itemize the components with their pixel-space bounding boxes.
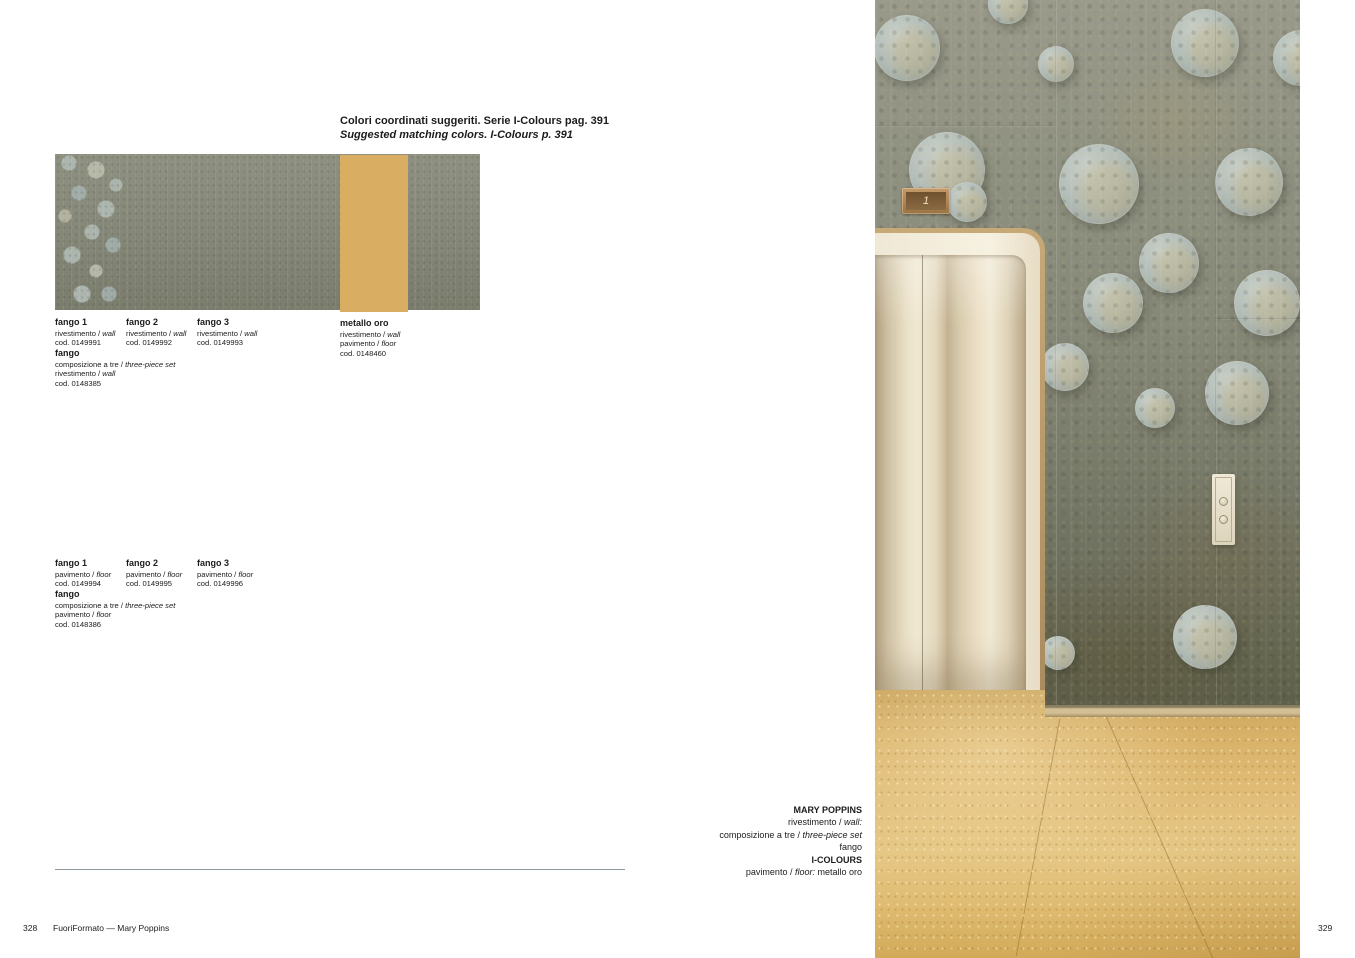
elevator [875, 228, 1045, 690]
label-metallo-oro: metallo oro rivestimento / wall paviment… [340, 319, 430, 358]
wall-circle [1139, 233, 1199, 293]
elevator-floor-display: 1 [902, 188, 950, 214]
project-wall-product: fango [562, 841, 862, 853]
product-name: fango 3 [197, 318, 267, 328]
product-name: fango [55, 349, 275, 359]
project-title: MARY POPPINS [562, 804, 862, 816]
heading-english: Suggested matching colors. I-Colours p. … [340, 129, 609, 143]
product-code: cod. 0148386 [55, 620, 275, 630]
wall-tile-joint [1215, 0, 1217, 717]
photo-gold-floor [875, 690, 1300, 958]
elevator-doors [875, 255, 1026, 690]
page-number-left: 328 [23, 923, 37, 933]
wall-circle [1215, 148, 1283, 216]
call-button-up [1219, 497, 1228, 506]
wall-circle [947, 182, 987, 222]
product-name: fango 3 [197, 559, 267, 569]
product-application: pavimento / floor [197, 570, 267, 580]
product-application: pavimento / floor [126, 570, 196, 580]
product-application: rivestimento / wall [55, 369, 275, 379]
call-button-down [1219, 515, 1228, 524]
swatch-fango-3-wall [55, 154, 480, 310]
product-application: pavimento / floor [55, 610, 275, 620]
floor-tile-seam [1016, 715, 1061, 956]
room-photo: 1 [875, 0, 1300, 958]
label-fango-2-wall: fango 2 rivestimento / wall cod. 0149992 [126, 318, 196, 348]
label-fango-set-floor: fango composizione a tre / three-piece s… [55, 590, 275, 629]
label-fango-3-wall: fango 3 rivestimento / wall cod. 0149993 [197, 318, 267, 348]
wall-circle [1173, 605, 1237, 669]
catalog-title: FuoriFormato — Mary Poppins [53, 923, 169, 933]
product-name: fango 1 [55, 318, 125, 328]
wall-circle [1041, 636, 1075, 670]
set-composition: composizione a tre / three-piece set [55, 360, 275, 370]
wall-tile-joint [875, 125, 1055, 127]
project-floor-series: I-COLOURS [562, 854, 862, 866]
project-floor-label: pavimento / floor: metallo oro [562, 866, 862, 878]
wall-tile-joint [1215, 318, 1300, 320]
product-name: metallo oro [340, 319, 430, 329]
wall-circle [988, 0, 1028, 24]
product-name: fango [55, 590, 275, 600]
product-application-floor: pavimento / floor [340, 339, 430, 349]
product-application: rivestimento / wall [197, 329, 267, 339]
project-info-block: MARY POPPINS rivestimento / wall: compos… [562, 804, 862, 878]
wall-floor-junction [1045, 705, 1300, 717]
product-name: fango 1 [55, 559, 125, 569]
label-fango-2-floor: fango 2 pavimento / floor cod. 0149995 [126, 559, 196, 589]
project-composition: composizione a tre / three-piece set [562, 829, 862, 841]
label-fango-3-floor: fango 3 pavimento / floor cod. 0149996 [197, 559, 267, 589]
product-application: rivestimento / wall [126, 329, 196, 339]
wall-circle [1083, 273, 1143, 333]
wall-tile-joint [1055, 0, 1057, 717]
product-code: cod. 0149993 [197, 338, 267, 348]
matching-colors-heading: Colori coordinati suggeriti. Serie I-Col… [340, 115, 609, 142]
wall-circle [1171, 9, 1239, 77]
elevator-call-panel [1212, 474, 1235, 545]
page-number-right: 329 [1318, 923, 1332, 933]
label-fango-1-wall: fango 1 rivestimento / wall cod. 0149991 [55, 318, 125, 348]
footer-rule [55, 869, 625, 870]
swatch-metallo-oro [340, 155, 408, 312]
product-application-wall: rivestimento / wall [340, 330, 430, 340]
product-code: cod. 0148385 [55, 379, 275, 389]
elevator-door-seam [922, 255, 923, 690]
wall-circle [1038, 46, 1074, 82]
project-wall-label: rivestimento / wall: [562, 816, 862, 828]
wall-circle [1205, 361, 1269, 425]
catalog-spread: Colori coordinati suggeriti. Serie I-Col… [0, 0, 1355, 958]
wall-circle [875, 15, 940, 81]
wall-circle [1135, 388, 1175, 428]
product-code: cod. 0149995 [126, 579, 196, 589]
product-code: cod. 0149994 [55, 579, 125, 589]
wall-circle [1041, 343, 1089, 391]
product-code: cod. 0149996 [197, 579, 267, 589]
elevator-floor-number: 1 [906, 192, 946, 210]
wall-circle [1273, 30, 1300, 86]
product-name: fango 2 [126, 559, 196, 569]
heading-italian: Colori coordinati suggeriti. Serie I-Col… [340, 115, 609, 129]
wall-circle [1059, 144, 1139, 224]
label-fango-1-floor: fango 1 pavimento / floor cod. 0149994 [55, 559, 125, 589]
product-name: fango 2 [126, 318, 196, 328]
product-code: cod. 0149992 [126, 338, 196, 348]
product-application: pavimento / floor [55, 570, 125, 580]
product-application: rivestimento / wall [55, 329, 125, 339]
floor-tile-seam [1105, 715, 1213, 958]
label-fango-set-wall: fango composizione a tre / three-piece s… [55, 349, 275, 388]
set-composition: composizione a tre / three-piece set [55, 601, 275, 611]
product-code: cod. 0148460 [340, 349, 430, 359]
wall-circle [1234, 270, 1300, 336]
product-code: cod. 0149991 [55, 338, 125, 348]
